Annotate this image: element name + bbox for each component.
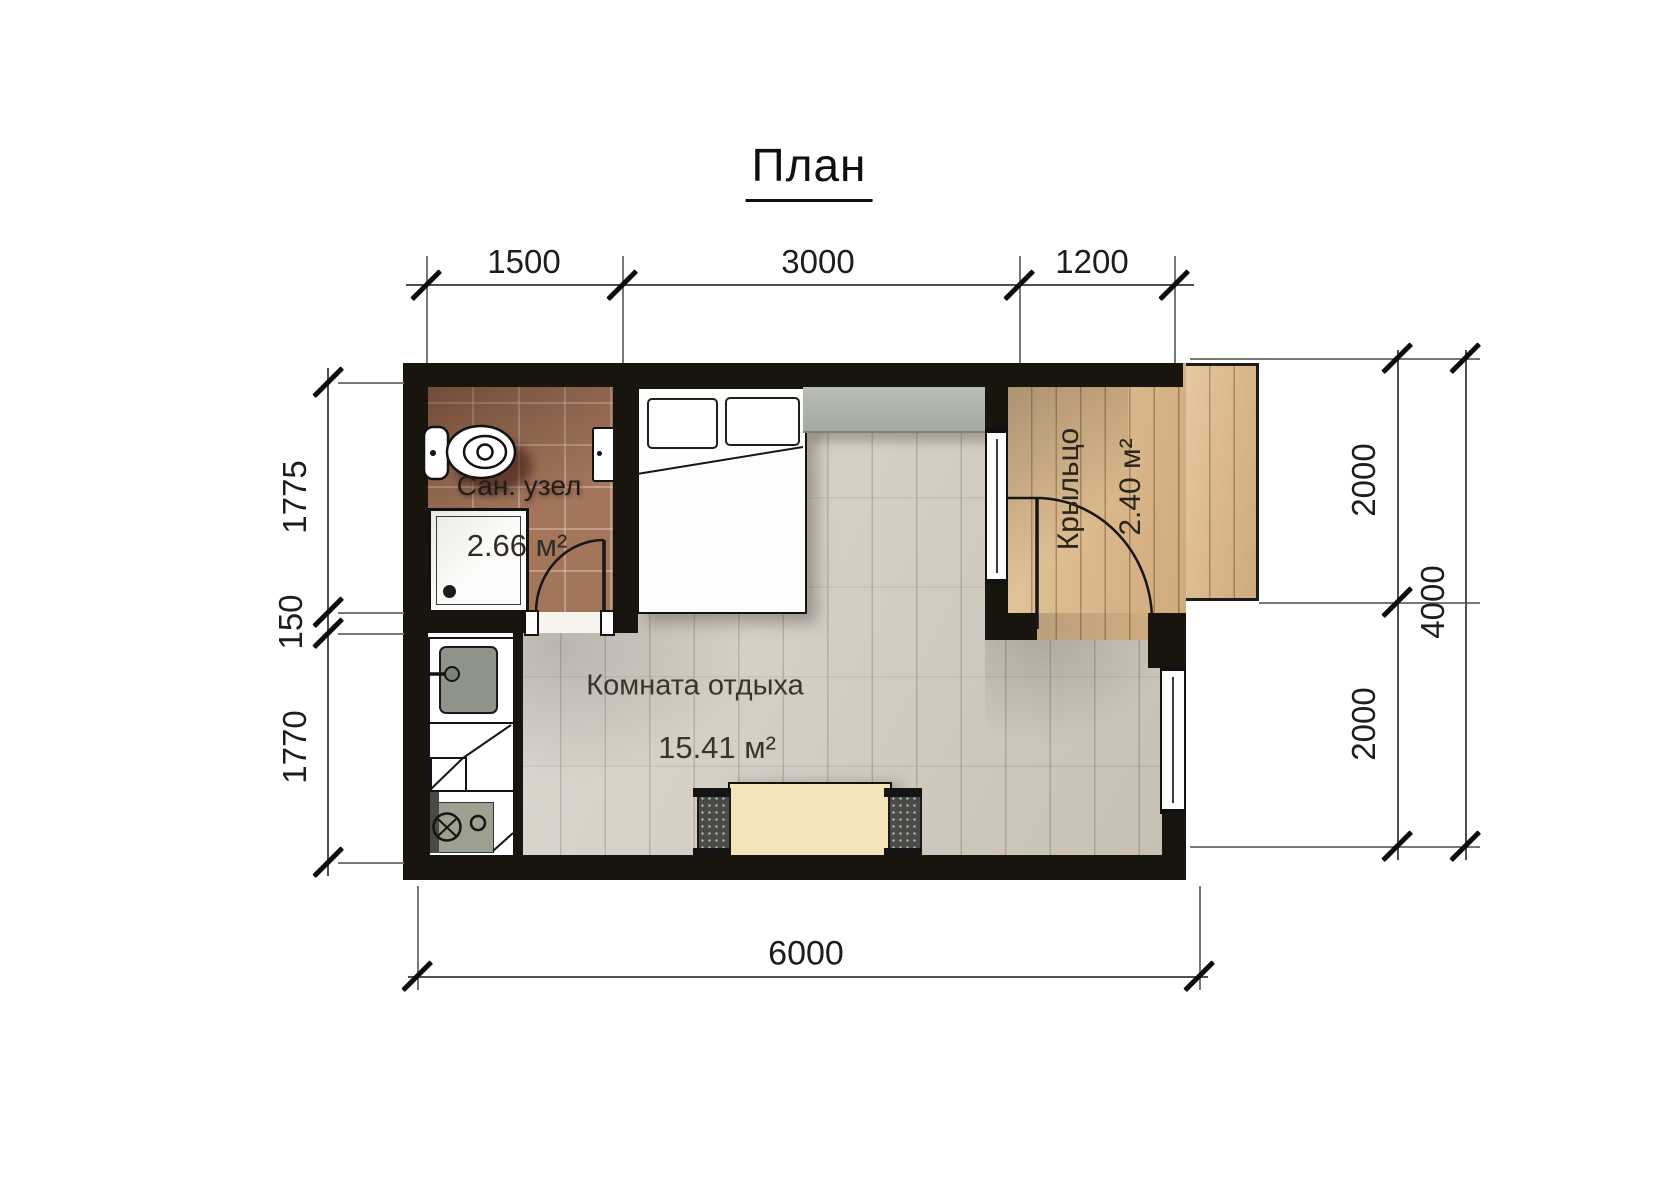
porch-window-pane bbox=[996, 439, 998, 573]
dim-top-3000: 3000 bbox=[781, 243, 854, 281]
lounge-window-pane bbox=[1172, 677, 1174, 804]
dim-top-1200: 1200 bbox=[1055, 243, 1128, 281]
shower-drain bbox=[443, 585, 456, 598]
bathroom-door-jamb-right bbox=[600, 610, 615, 636]
porch-area-label: 2.40 м² bbox=[1114, 438, 1148, 535]
lounge-window bbox=[1160, 666, 1186, 814]
dim-left-150: 150 bbox=[272, 594, 310, 649]
bathroom-door-jamb-left bbox=[524, 610, 539, 636]
wall-porch-pillar bbox=[1148, 613, 1186, 668]
dim-line-top bbox=[406, 284, 1194, 286]
dim-right-2000-upper: 2000 bbox=[1345, 443, 1383, 516]
plan-title: План bbox=[746, 138, 873, 202]
bench-right-cap-top bbox=[884, 788, 922, 797]
bathroom-door-opening bbox=[530, 612, 610, 633]
wall-bottom bbox=[403, 855, 1186, 880]
dining-table-icon bbox=[728, 782, 892, 859]
ext-left-3 bbox=[338, 633, 404, 635]
porch-label: Крыльцо bbox=[1052, 428, 1086, 550]
bench-icon-left bbox=[697, 795, 731, 850]
dim-line-left bbox=[327, 368, 329, 876]
bench-left-cap-top bbox=[693, 788, 731, 797]
bathroom-label: Сан. узел bbox=[457, 470, 582, 502]
wall-kitchen-divider bbox=[513, 633, 523, 855]
ext-right-3 bbox=[1190, 846, 1480, 848]
ext-top-3 bbox=[1019, 256, 1021, 363]
ext-left-1 bbox=[338, 382, 404, 384]
dim-line-right-outer bbox=[1465, 350, 1467, 860]
dresser-icon bbox=[803, 387, 985, 433]
counter-corner-box bbox=[430, 757, 467, 793]
pillow-icon-left bbox=[647, 398, 718, 449]
dim-line-right-inner bbox=[1397, 350, 1399, 860]
ext-top-2 bbox=[622, 256, 624, 363]
cabinet-knob bbox=[597, 451, 602, 456]
ext-left-4 bbox=[338, 862, 404, 864]
lounge-area-label: 15.41 м² bbox=[658, 730, 776, 766]
double-bed-icon bbox=[637, 387, 807, 614]
dim-bottom-6000: 6000 bbox=[768, 935, 844, 974]
plan-title-wrap: План bbox=[746, 138, 873, 202]
ext-left-2 bbox=[338, 612, 404, 614]
wall-bathroom-south-left bbox=[403, 612, 530, 633]
ext-top-4 bbox=[1174, 256, 1176, 363]
wall-right-lower bbox=[1162, 810, 1186, 858]
sink-basin bbox=[439, 646, 498, 714]
dim-top-1500: 1500 bbox=[487, 243, 560, 281]
porch-deck-floor bbox=[1008, 363, 1186, 640]
bathroom-area-label: 2.66 м² bbox=[467, 528, 568, 564]
dim-right-2000-lower: 2000 bbox=[1345, 687, 1383, 760]
wall-top bbox=[403, 363, 1183, 387]
outer-deck-floor bbox=[1186, 363, 1259, 601]
dim-left-1770: 1770 bbox=[276, 710, 314, 783]
stove-cooktop bbox=[432, 802, 494, 853]
dim-line-bottom bbox=[408, 976, 1208, 978]
ext-right-1 bbox=[1190, 358, 1480, 360]
ext-top-1 bbox=[426, 256, 428, 363]
wall-porch-south bbox=[985, 613, 1037, 640]
floor-plan-canvas: План bbox=[0, 0, 1680, 1187]
stove-icon bbox=[428, 790, 519, 859]
pillow-icon-right bbox=[725, 397, 800, 446]
wall-bathroom-east bbox=[613, 363, 638, 633]
wall-porch-west-upper bbox=[985, 363, 1008, 430]
porch-window bbox=[985, 428, 1008, 584]
dim-left-1775: 1775 bbox=[276, 460, 314, 533]
stove-edge bbox=[430, 792, 439, 853]
bench-icon-right bbox=[888, 795, 922, 850]
lounge-label: Комната отдыха bbox=[586, 670, 804, 703]
kitchen-sink-icon bbox=[428, 637, 517, 726]
dim-right-4000: 4000 bbox=[1414, 565, 1452, 638]
